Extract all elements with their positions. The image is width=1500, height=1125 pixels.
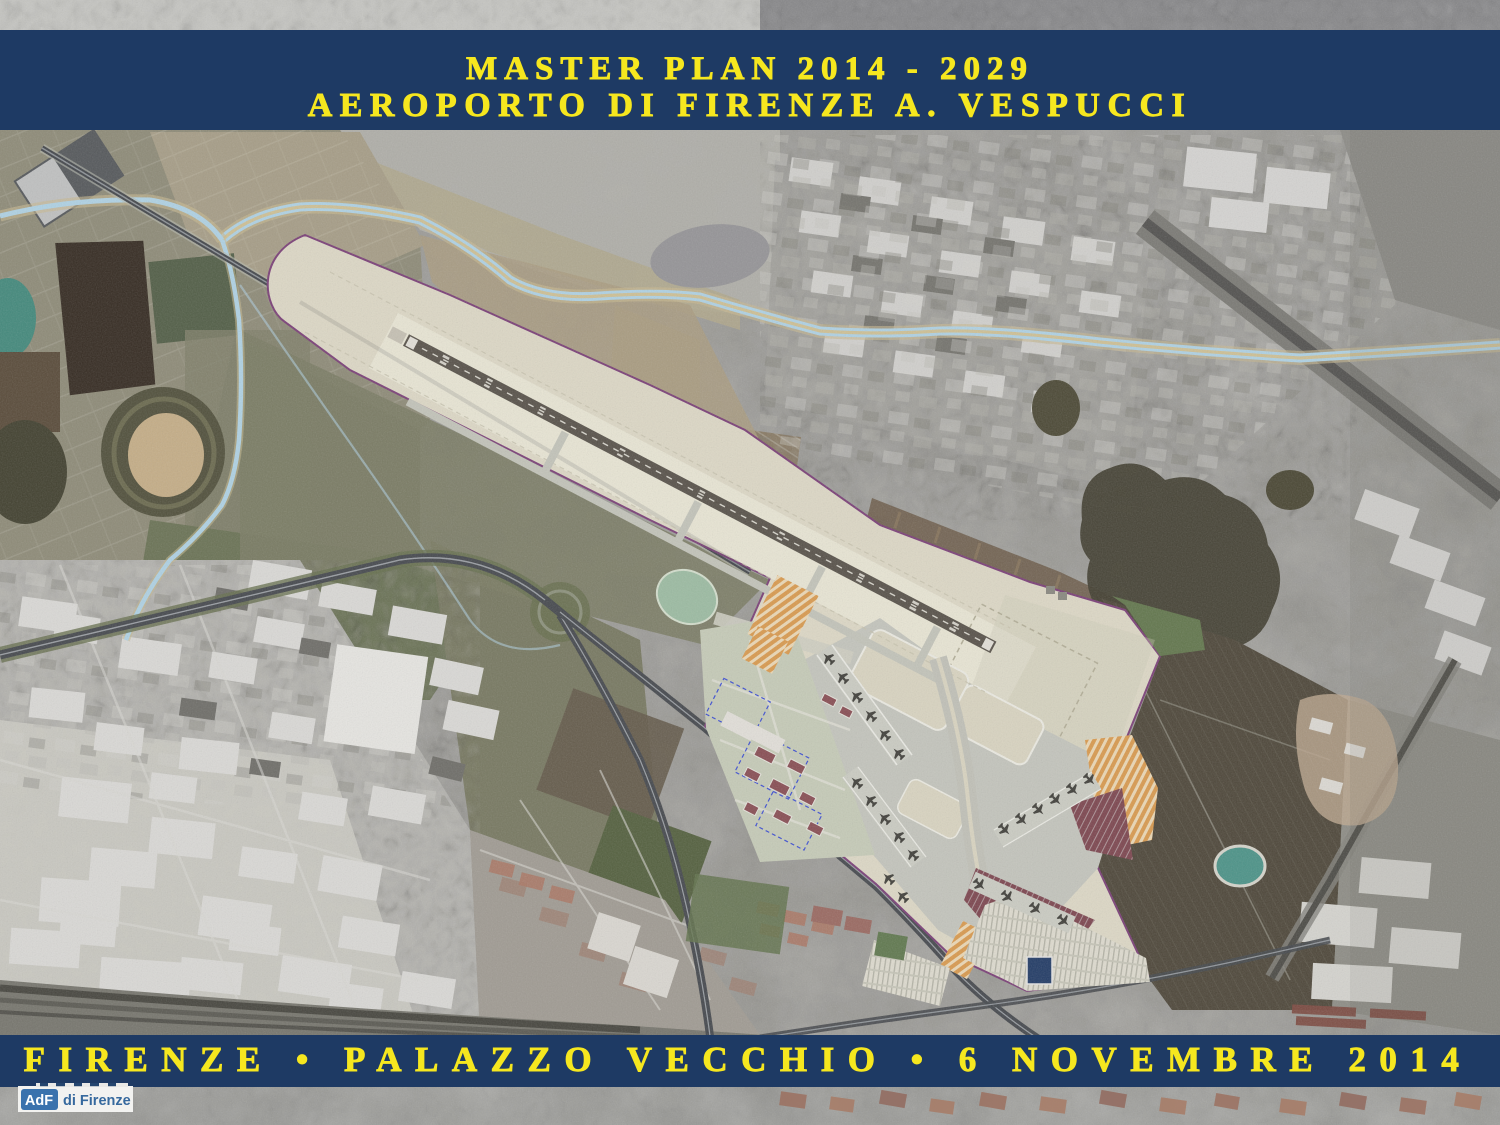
svg-text:FIRENZE • PALAZZO VECCHIO •: FIRENZE • PALAZZO VECCHIO • 6 NOVEMBRE 2…	[24, 1040, 1473, 1079]
svg-text:AdF: AdF	[25, 1093, 53, 1109]
svg-text:MASTER PLAN 2014 - 2029: MASTER PLAN 2014 - 2029	[466, 51, 1034, 87]
svg-text:di Firenze: di Firenze	[63, 1093, 131, 1109]
svg-text:AEROPORTO DI FIRENZE A. VESPUC: AEROPORTO DI FIRENZE A. VESPUCCI	[308, 87, 1193, 124]
